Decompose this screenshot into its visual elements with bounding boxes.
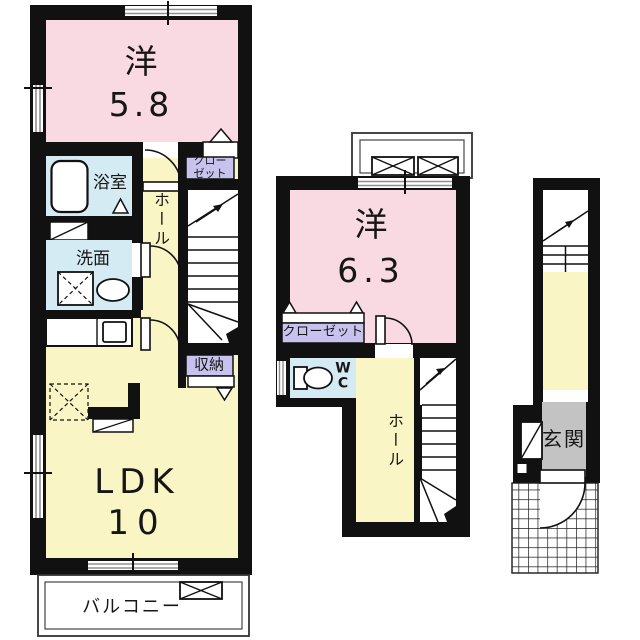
hall-label: ホール: [386, 413, 402, 470]
bedroom-58-label: 洋5.8: [109, 41, 173, 127]
wall: [178, 355, 186, 388]
wall: [178, 179, 252, 190]
wall: [30, 142, 143, 158]
hall-label: ホール: [152, 192, 168, 249]
wall: [178, 190, 188, 343]
wall: [132, 156, 143, 243]
wall: [132, 277, 143, 310]
room-size: 5.8: [109, 84, 173, 127]
toilet: [304, 368, 332, 389]
room-kanji: 洋: [109, 41, 173, 84]
entrance-step: [543, 390, 588, 402]
wall: [178, 158, 186, 179]
sink: [97, 279, 129, 301]
bathtub: [52, 161, 88, 212]
corridor-floor: [543, 272, 588, 390]
closet-label: クロー ゼット: [194, 154, 227, 180]
entrance-door: [540, 470, 585, 483]
door-leaf: [141, 243, 150, 277]
bedroom-63-label: 洋6.3: [337, 202, 404, 294]
balcony-upper: [352, 133, 472, 178]
ldk-label: LDK10: [94, 462, 179, 544]
kitchen-sink: [103, 322, 126, 342]
window-left: [277, 361, 286, 395]
door-leaf: [143, 182, 181, 191]
wall: [46, 310, 141, 318]
wall: [414, 405, 422, 479]
wc-label: W C: [335, 361, 350, 390]
storage-door-track: [188, 376, 234, 387]
wall-niche: [518, 464, 527, 473]
storage-label: 収納: [194, 355, 224, 375]
closet-label: クローゼット: [282, 325, 363, 342]
entrance-label: 玄関: [542, 426, 586, 452]
balcony-label: バルコニー: [82, 595, 182, 618]
room-kanji: LDK: [94, 462, 179, 503]
room-kanji: 洋: [337, 202, 404, 248]
wall: [178, 343, 252, 355]
room-size: 10: [94, 503, 179, 544]
wall: [88, 407, 140, 419]
plan-right: [512, 178, 600, 573]
door-leaf: [376, 316, 385, 344]
wall: [128, 383, 140, 409]
closet-door-track: [282, 313, 364, 323]
washroom-label: 洗面: [76, 248, 110, 270]
floorplan-svg: [0, 0, 640, 640]
door-opening: [375, 344, 413, 358]
bathroom-label: 浴室: [93, 172, 127, 194]
floorplan-canvas: 洋5.8 浴室 洗面 ホール クロー ゼット 収納 LDK10 バルコニー 洋6…: [0, 0, 640, 640]
room-size: 6.3: [337, 248, 404, 294]
door-leaf: [141, 318, 150, 350]
kitchen-counter: [46, 318, 132, 346]
